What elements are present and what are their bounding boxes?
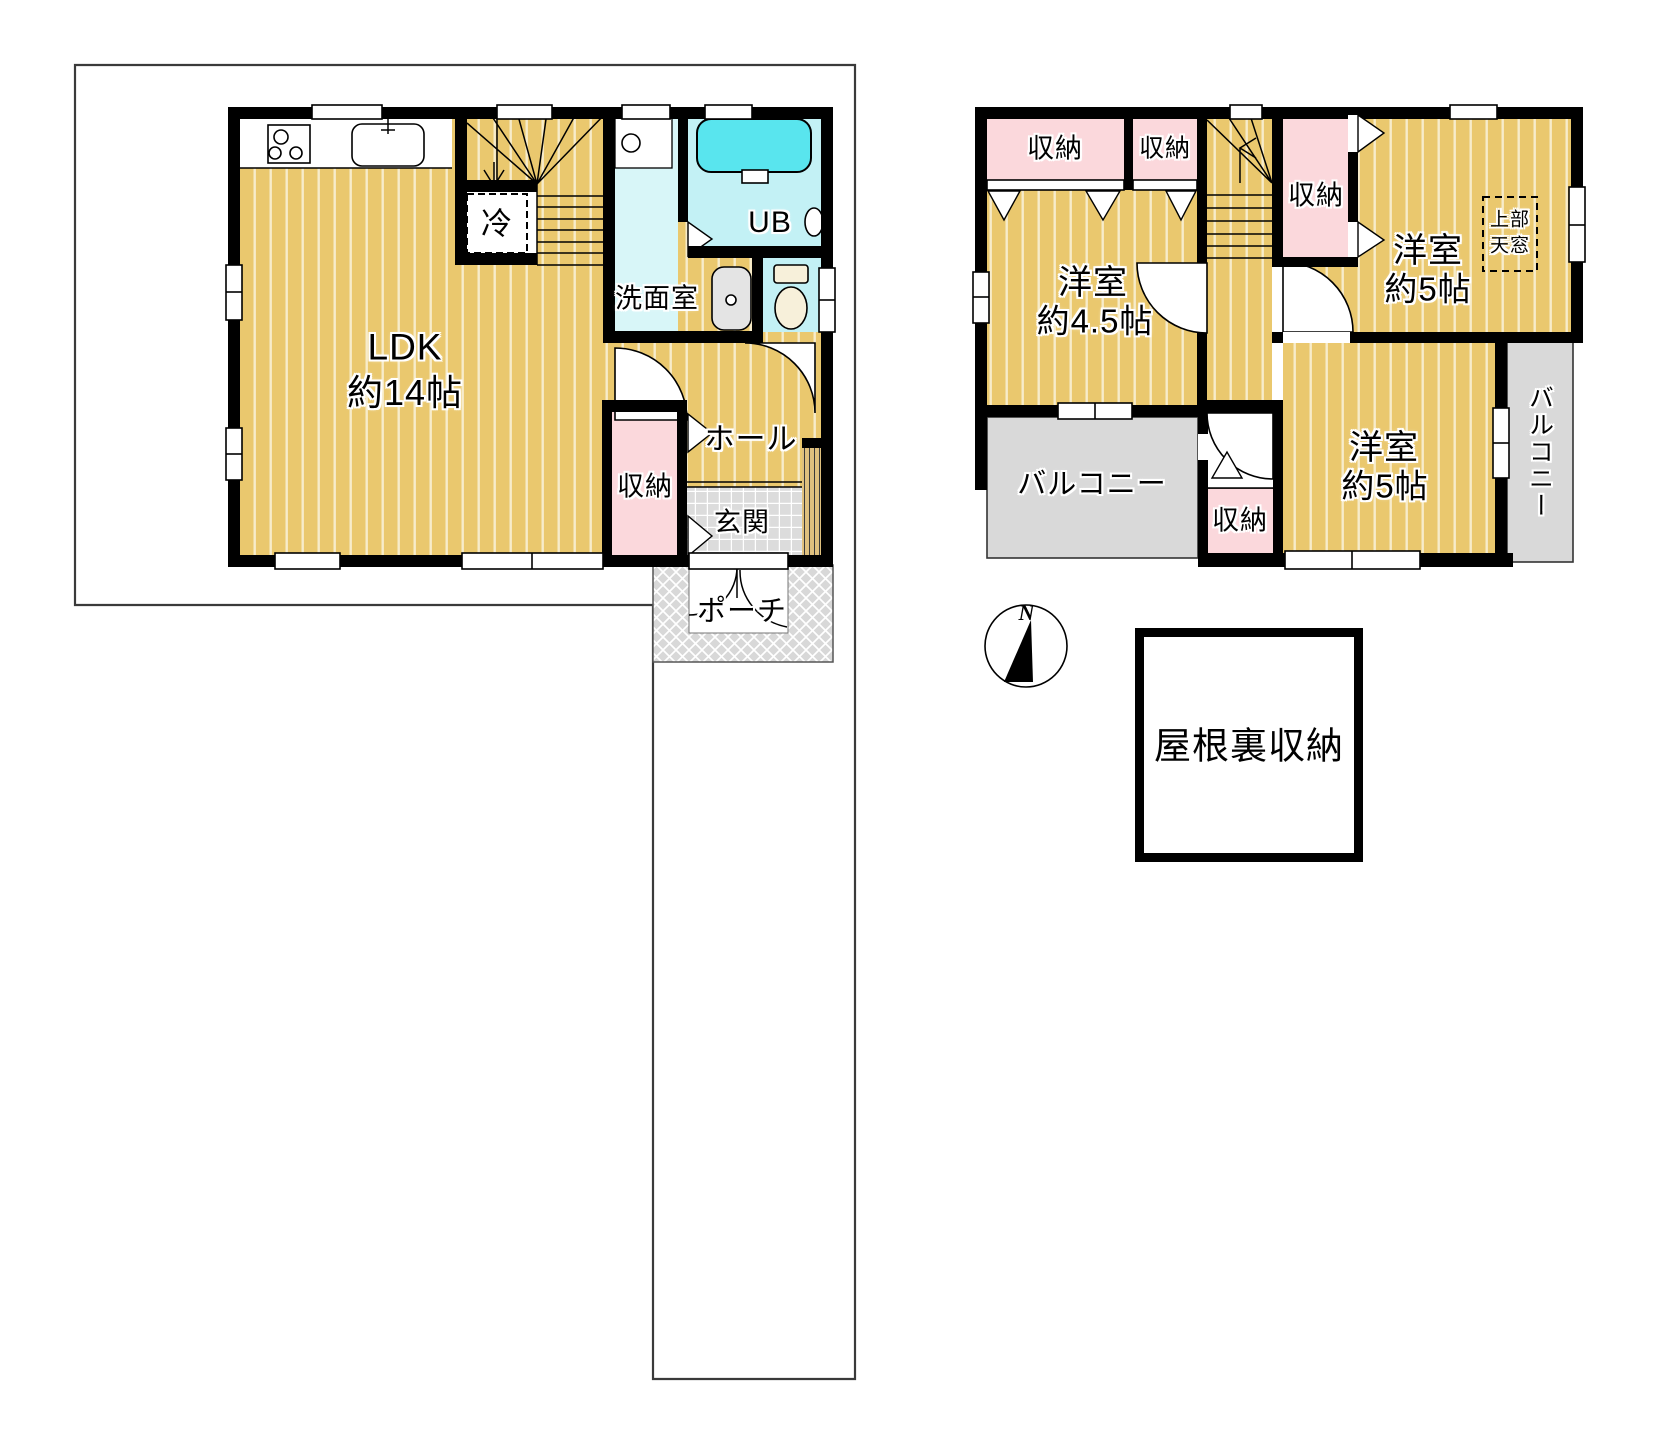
label-bedroom-w-size: 約4.5帖 bbox=[1037, 305, 1154, 338]
label-storage-nw: 収納 bbox=[1027, 136, 1083, 163]
label-ldk: LDK bbox=[368, 329, 443, 366]
label-storage-e: 収納 bbox=[1288, 183, 1344, 210]
label-balcony-west: バルコニー bbox=[1017, 471, 1166, 500]
label-bedroom-w: 洋室 bbox=[1058, 266, 1128, 300]
label-ldk-size: 約14帖 bbox=[347, 375, 463, 411]
label-storage-1f: 収納 bbox=[617, 474, 673, 501]
label-bath-ub: UB bbox=[748, 208, 792, 238]
shoe-cabinet bbox=[802, 448, 821, 561]
label-storage-s: 収納 bbox=[1212, 508, 1268, 535]
label-skylight-1: 上部 bbox=[1490, 211, 1530, 230]
label-washroom: 洗面室 bbox=[615, 286, 699, 313]
label-refrigerator: 冷 bbox=[481, 209, 513, 240]
label-storage-n: 収納 bbox=[1139, 137, 1191, 162]
label-bedroom-se: 洋室 bbox=[1349, 431, 1419, 465]
label-bedroom-ne-size: 約5帖 bbox=[1384, 273, 1471, 306]
toilet-icon bbox=[774, 265, 808, 283]
label-entrance: 玄関 bbox=[714, 510, 770, 537]
floorplan-canvas: LDK 約14帖 冷 洗面室 UB ホール 収納 玄関 ポーチ 収納 収納 収納… bbox=[0, 0, 1659, 1447]
label-bedroom-ne: 洋室 bbox=[1393, 234, 1463, 268]
label-balcony-east: バルコニー bbox=[1527, 385, 1552, 520]
label-bedroom-se-size: 約5帖 bbox=[1341, 470, 1428, 503]
label-porch: ポーチ bbox=[697, 598, 787, 627]
label-attic-storage: 屋根裏収納 bbox=[1154, 728, 1344, 765]
label-skylight-2: 天窓 bbox=[1490, 237, 1530, 256]
bathtub-icon bbox=[697, 119, 811, 172]
label-compass-north: N bbox=[1019, 602, 1036, 624]
label-hall: ホール bbox=[705, 425, 798, 455]
floorplan-drawing bbox=[0, 0, 1659, 1447]
